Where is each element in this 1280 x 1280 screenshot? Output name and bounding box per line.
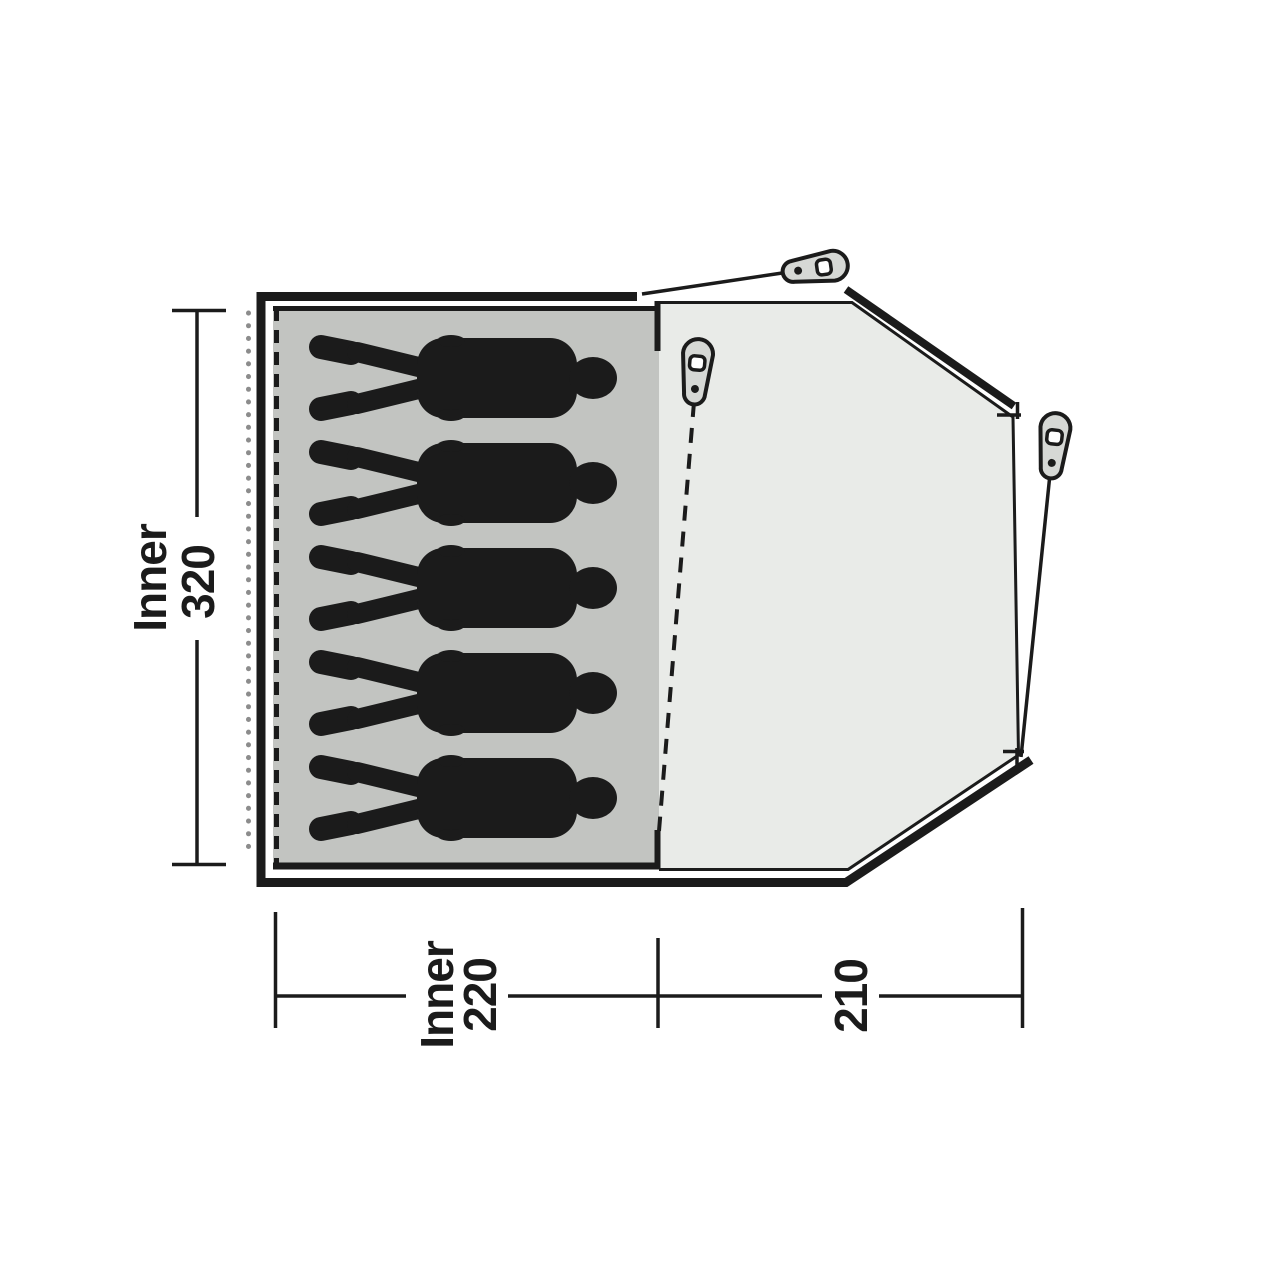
- guyline-top-cord: [642, 272, 789, 294]
- tent-peg-icon: [781, 249, 850, 288]
- porch-area: [659, 301, 1019, 871]
- tent-peg-icon: [1035, 412, 1072, 480]
- porch-floor: [659, 301, 1019, 871]
- inner-width-value: 220: [454, 958, 506, 1032]
- guyline-right-cord: [1021, 474, 1050, 757]
- dimension-inner-depth: Inner 320: [124, 310, 226, 865]
- tent-floorplan: Inner 320 Inner 220 210: [0, 0, 1280, 1280]
- inner-depth-label: Inner: [124, 523, 176, 632]
- guyline-top: [642, 249, 850, 294]
- dimension-bottom: Inner 220 210: [275, 908, 1023, 1049]
- inner-depth-value: 320: [172, 545, 224, 619]
- guyline-right: [1021, 412, 1072, 757]
- porch-width-value: 210: [825, 959, 877, 1033]
